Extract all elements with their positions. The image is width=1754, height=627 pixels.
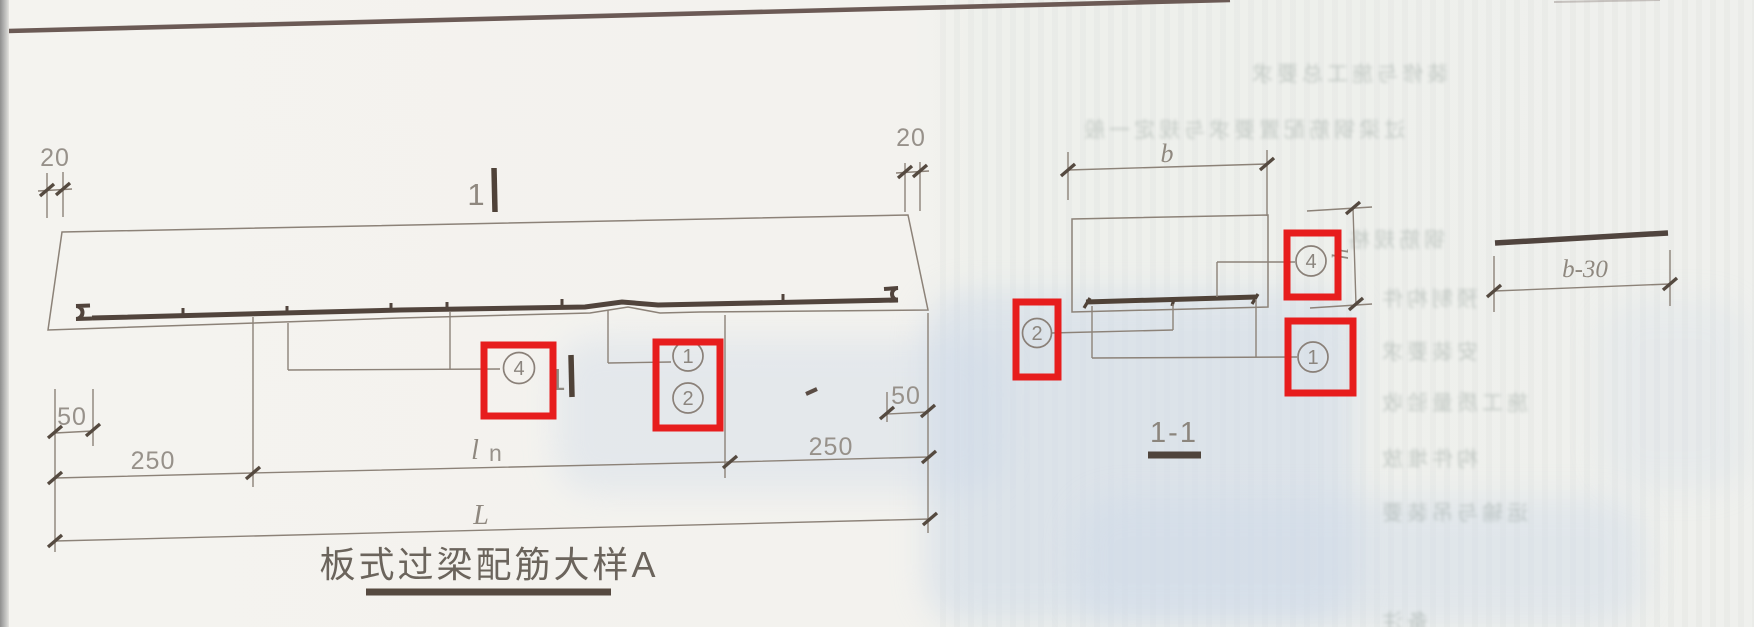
dim-ln-sub: n bbox=[489, 440, 502, 466]
elevation-callout-circles bbox=[504, 341, 704, 413]
elevation-title: 板式过梁配筋大样A bbox=[319, 544, 658, 585]
technical-drawing-canvas: 1 1 20 20 50 50 250 250 l n L 4 1 2 板式过梁… bbox=[0, 0, 1754, 627]
dim-b-30: b-30 bbox=[1562, 256, 1608, 283]
highlight-box-callout-4-elevation bbox=[484, 345, 553, 416]
rebar-hook-right bbox=[870, 288, 898, 301]
lintel-beam-outline bbox=[48, 215, 928, 330]
callout-4-section-label: 4 bbox=[1305, 251, 1316, 273]
dim-ln-main: l bbox=[471, 435, 479, 466]
page-edge-scan-line-faint bbox=[1554, 0, 1660, 2]
dim-50-left: 50 bbox=[57, 403, 87, 431]
dim-250-right: 250 bbox=[809, 433, 854, 461]
detail-bar bbox=[1495, 233, 1668, 243]
scan-edge-strip bbox=[0, 0, 9, 627]
section-rebar-bar bbox=[1086, 297, 1256, 302]
dimension-ticks bbox=[40, 165, 937, 547]
callout-1-elevation-label: 1 bbox=[682, 346, 693, 368]
ink-speck bbox=[806, 389, 817, 394]
callout-2-elevation-label: 2 bbox=[682, 388, 693, 410]
dim-20-left: 20 bbox=[40, 144, 70, 172]
dim-b: b bbox=[1161, 139, 1174, 168]
section-cut-mark-top bbox=[494, 168, 495, 212]
dim-250-left: 250 bbox=[131, 447, 176, 475]
section-marker-top-label: 1 bbox=[467, 177, 484, 212]
callout-2-section-label: 2 bbox=[1031, 323, 1042, 345]
callout-1-section-label: 1 bbox=[1307, 347, 1318, 369]
section-title: 1-1 bbox=[1150, 417, 1198, 449]
callout-4-elevation-label: 4 bbox=[513, 358, 524, 380]
dim-L: L bbox=[472, 500, 489, 531]
scanned-page: 装修与施工总要求 过梁钢筋配置要求与规定一般 钢筋规格 预制构件 安装要求 施工… bbox=[0, 0, 1754, 627]
page-edge-scan-line bbox=[8, 0, 1230, 31]
dim-50-right: 50 bbox=[891, 382, 921, 410]
dim-20-right: 20 bbox=[896, 124, 926, 152]
section-cut-mark-bottom bbox=[571, 355, 572, 397]
rebar-hook-left bbox=[76, 306, 92, 320]
